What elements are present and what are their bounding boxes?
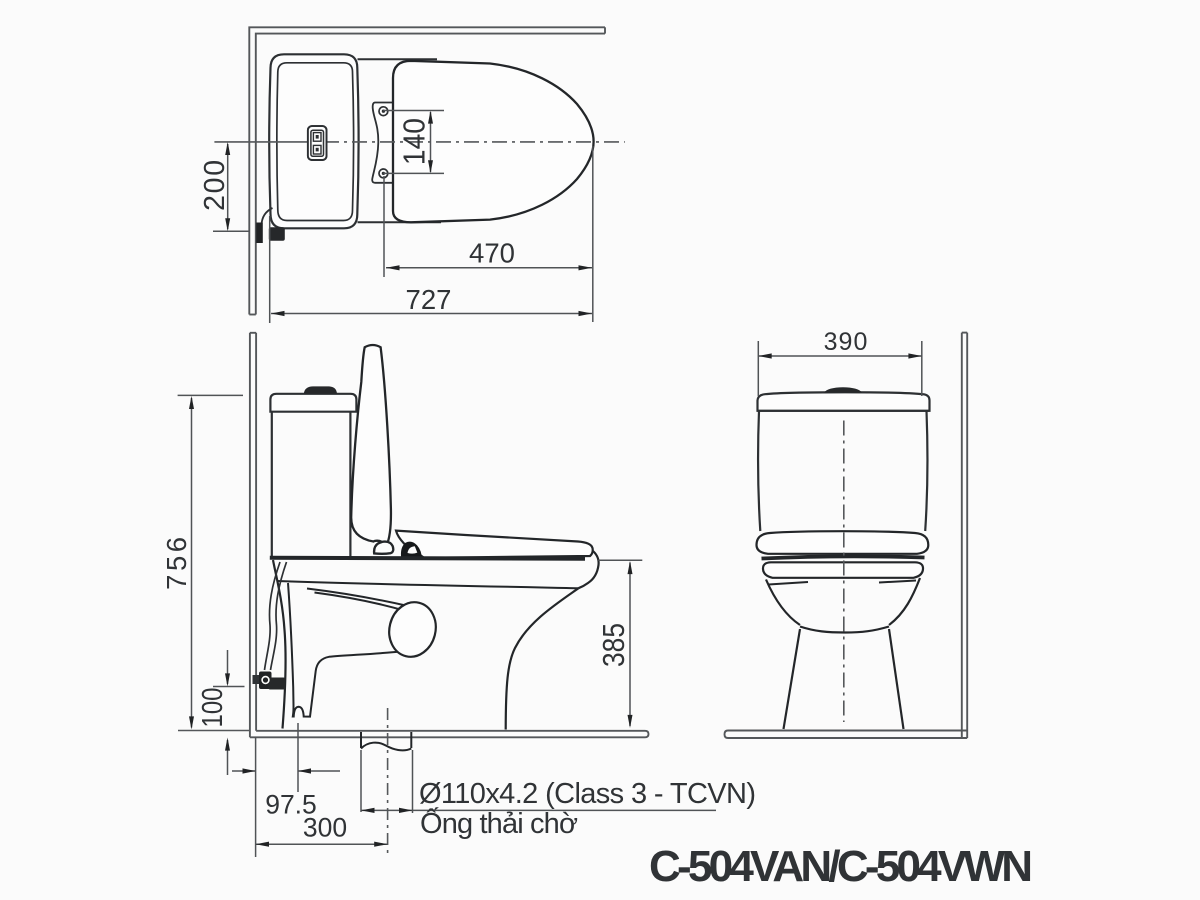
svg-text:C-504VAN/C-504VWN: C-504VAN/C-504VWN <box>649 842 1033 891</box>
svg-text:Ø110x4.2 (Class 3 - TCVN): Ø110x4.2 (Class 3 - TCVN) <box>419 778 756 810</box>
svg-text:727: 727 <box>406 284 452 315</box>
svg-text:300: 300 <box>303 813 347 843</box>
svg-text:200: 200 <box>199 160 231 211</box>
svg-text:385: 385 <box>596 623 631 667</box>
svg-text:140: 140 <box>397 118 432 165</box>
svg-text:470: 470 <box>469 238 515 269</box>
svg-text:390: 390 <box>824 328 869 356</box>
svg-text:756: 756 <box>161 537 192 590</box>
svg-text:Ống thải chờ: Ống thải chờ <box>420 806 578 840</box>
svg-text:100: 100 <box>197 688 229 728</box>
